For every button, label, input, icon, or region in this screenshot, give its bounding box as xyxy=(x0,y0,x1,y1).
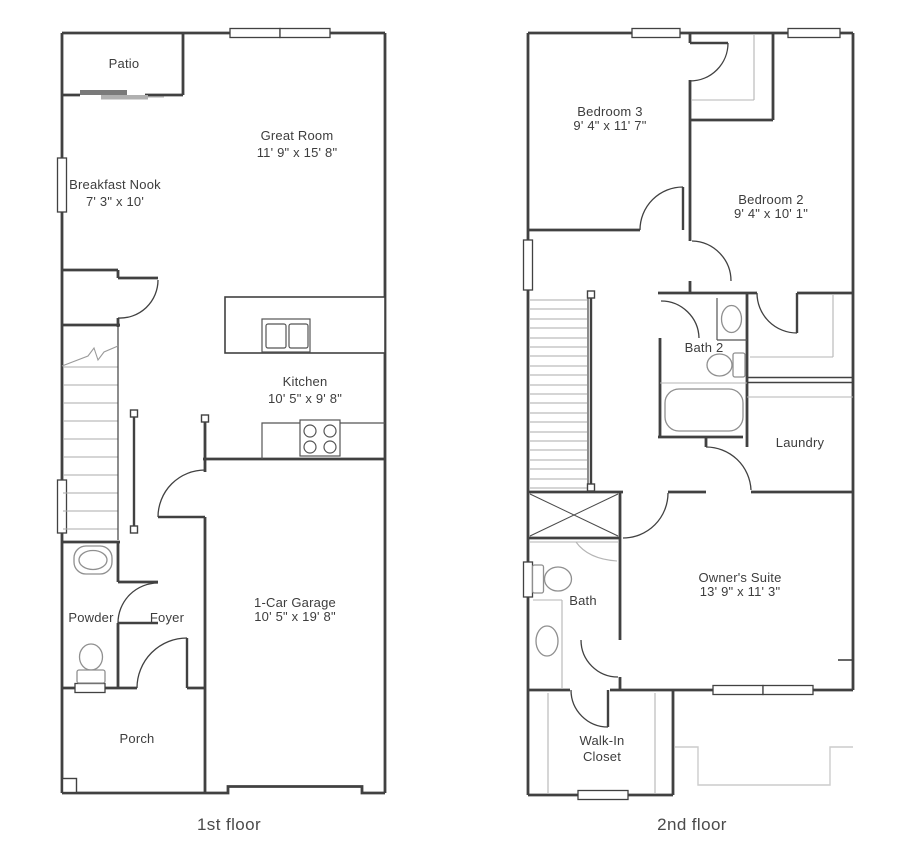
floor1-doors xyxy=(118,280,205,688)
room-label-laundry: Laundry xyxy=(776,435,825,450)
bath-toilet-bowl xyxy=(545,567,572,591)
room-dims-kitchen: 10' 5" x 9' 8" xyxy=(268,391,342,406)
floor2-plan: Bedroom 3 9' 4" x 11' 7" Bedroom 2 9' 4"… xyxy=(524,29,854,835)
bedroom3-window xyxy=(632,29,680,38)
bedroom3-door-arc xyxy=(640,187,683,230)
owners-suite-window xyxy=(763,686,813,695)
owners-suite-door-arc xyxy=(623,493,668,538)
room-label-bath: Bath xyxy=(569,593,597,608)
floor1-stairs xyxy=(62,327,138,540)
room-dims-great-room: 11' 9" x 15' 8" xyxy=(257,145,338,160)
room-dims-bedroom3: 9' 4" x 11' 7" xyxy=(573,118,646,133)
room-label-foyer: Foyer xyxy=(150,610,185,625)
floor1-plan: Patio Great Room 11' 9" x 15' 8" Breakfa… xyxy=(58,29,386,835)
sliding-door-panel xyxy=(80,90,127,95)
bath-window xyxy=(524,562,533,597)
great-room-window xyxy=(230,29,280,38)
room-label-bedroom3: Bedroom 3 xyxy=(577,104,642,119)
room-label-bath2: Bath 2 xyxy=(685,340,724,355)
handrail-cap xyxy=(131,526,138,533)
kitchen-sink-bowl xyxy=(266,324,286,348)
bedroom3-closet-door-arc xyxy=(690,43,728,81)
stair-landing-window xyxy=(524,240,533,290)
closet-door-arc xyxy=(118,280,158,318)
side-window xyxy=(58,480,67,533)
garage-door-arc xyxy=(158,470,205,517)
sliding-door-panel xyxy=(101,95,148,100)
wall-end-cap xyxy=(202,415,209,422)
room-dims-owners-suite: 13' 9" x 11' 3" xyxy=(700,584,781,599)
shower-curtain-swing xyxy=(576,542,617,561)
bedroom2-door-arc xyxy=(692,241,731,281)
bath-door-arc xyxy=(581,640,618,677)
stove xyxy=(300,420,340,456)
breakfast-nook-window xyxy=(58,158,67,212)
room-label-walk-in-closet-line1: Walk-In xyxy=(580,733,625,748)
bath2-sink xyxy=(722,306,742,333)
room-label-garage: 1-Car Garage xyxy=(254,595,336,610)
floor2-stairs xyxy=(530,291,595,492)
handrail-cap xyxy=(588,484,595,491)
room-label-walk-in-closet-line2: Closet xyxy=(583,749,621,764)
floor1-caption: 1st floor xyxy=(197,815,261,834)
bath2-tub xyxy=(665,389,743,431)
roof-outline-below xyxy=(675,747,853,785)
room-label-breakfast-nook: Breakfast Nook xyxy=(69,177,161,192)
powder-sink-bowl xyxy=(79,551,107,570)
walk-in-closet-window xyxy=(578,791,628,800)
floor2-fixtures xyxy=(530,35,853,793)
bath2-toilet-tank xyxy=(733,353,745,377)
powder-window xyxy=(75,684,105,693)
bath2-toilet-bowl xyxy=(707,354,732,376)
powder-toilet-bowl xyxy=(80,644,103,670)
walk-in-closet-door-arc xyxy=(571,690,608,727)
room-label-porch: Porch xyxy=(120,731,155,746)
bedroom3-closet-shelf xyxy=(692,35,754,100)
floorplan-drawing: Patio Great Room 11' 9" x 15' 8" Breakfa… xyxy=(0,0,909,852)
handrail-cap xyxy=(588,291,595,298)
room-dims-breakfast-nook: 7' 3" x 10' xyxy=(86,194,144,209)
floor2-caption: 2nd floor xyxy=(657,815,727,834)
room-label-owners-suite: Owner's Suite xyxy=(698,570,781,585)
bedroom2-closet-door-arc xyxy=(757,293,797,333)
floorplan-page: Patio Great Room 11' 9" x 15' 8" Breakfa… xyxy=(0,0,909,852)
bath-sink xyxy=(536,626,558,656)
laundry-door-arc xyxy=(706,447,751,490)
bedroom2-window xyxy=(788,29,840,38)
front-door-arc xyxy=(137,638,187,688)
owners-suite-window xyxy=(713,686,763,695)
room-label-bedroom2: Bedroom 2 xyxy=(738,192,803,207)
bath-toilet-tank xyxy=(533,565,544,593)
shower-stall xyxy=(530,494,618,536)
room-dims-garage: 10' 5" x 19' 8" xyxy=(254,609,336,624)
bath2-door-arc xyxy=(661,301,699,338)
room-label-kitchen: Kitchen xyxy=(283,374,328,389)
bedroom2-closet-shelf xyxy=(750,295,833,357)
stair-break-line xyxy=(62,346,118,366)
porch-post xyxy=(63,779,77,793)
floor2-doors xyxy=(571,43,797,727)
room-label-great-room: Great Room xyxy=(261,128,334,143)
room-label-patio: Patio xyxy=(109,56,140,71)
great-room-window xyxy=(280,29,330,38)
powder-toilet-tank xyxy=(77,670,105,683)
room-label-powder: Powder xyxy=(68,610,114,625)
room-dims-bedroom2: 9' 4" x 10' 1" xyxy=(734,206,808,221)
kitchen-sink-bowl xyxy=(289,324,308,348)
handrail-cap xyxy=(131,410,138,417)
